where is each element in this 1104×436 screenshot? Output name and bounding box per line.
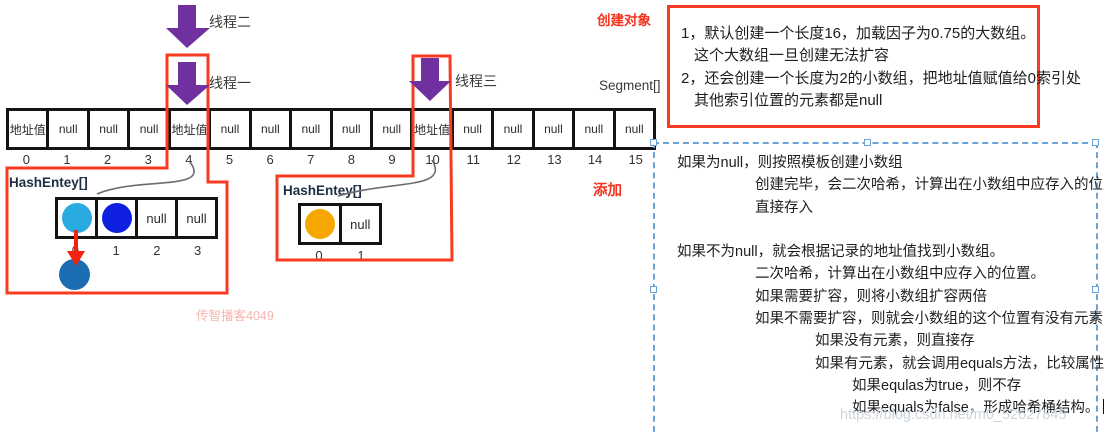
flow-line (657, 219, 1095, 241)
add-label: 添加 (593, 179, 622, 200)
segment-cell: null (451, 108, 494, 150)
segment-cell: null (127, 108, 170, 150)
hash-index: 1 (96, 243, 137, 258)
segment-cells: 地址值nullnullnull地址值nullnullnullnullnull地址… (6, 108, 656, 150)
left-hash-indices: 0123 (55, 243, 218, 258)
hash-index: 3 (177, 243, 218, 258)
hash-index: 0 (55, 243, 96, 258)
note-line: 2，还会创建一个长度为2的小数组，把地址值赋值给0索引处 (670, 68, 1037, 90)
segment-cell: 地址值 (410, 108, 453, 150)
hash-cell (95, 197, 138, 239)
entry-circle-icon (62, 203, 92, 233)
segment-index: 3 (128, 152, 169, 167)
selection-handle[interactable] (1092, 139, 1099, 146)
watermark-csdn-url: https://blog.csdn.net/m0_52627845 (840, 407, 1067, 423)
right-hash-cells: null (298, 203, 382, 245)
note-line: 其他索引位置的元素都是null (670, 90, 1037, 112)
thread3-label: 线程三 (455, 71, 497, 91)
segment-index: 0 (6, 152, 47, 167)
segment-index: 7 (290, 152, 331, 167)
segment-cell: null (572, 108, 615, 150)
segment-index: 12 (494, 152, 535, 167)
flow-notes-textbox[interactable]: 如果为null，则按照模板创建小数组创建完毕，会二次哈希，计算出在小数组中应存入… (657, 146, 1095, 420)
hash-cell (298, 203, 342, 245)
flow-line: 如果为null，则按照模板创建小数组 (657, 152, 1095, 174)
flow-line: 如果需要扩容，则将小数组扩容两倍 (657, 286, 1095, 308)
hash-cell: null (135, 197, 178, 239)
selection-handle[interactable] (650, 286, 657, 293)
segment-cell: 地址值 (6, 108, 49, 150)
thread3-arrow-icon (409, 58, 451, 101)
segment-index: 14 (575, 152, 616, 167)
segment-index: 6 (250, 152, 291, 167)
hash-index: 0 (298, 248, 340, 263)
segment-cell: 地址值 (168, 108, 211, 150)
selection-handle[interactable] (650, 139, 657, 146)
segment-index: 8 (331, 152, 372, 167)
thread2-arrow-icon (166, 5, 210, 48)
segment-index: 2 (87, 152, 128, 167)
right-hash-indices: 01 (298, 248, 382, 263)
entry-circle-icon (305, 209, 335, 239)
segment-index: 15 (615, 152, 656, 167)
flow-line: 如果没有元素，则直接存 (657, 330, 1095, 352)
flow-line: 如果不需要扩容，则就会小数组的这个位置有没有元素 (657, 308, 1095, 330)
left-hashentry-label: HashEntey[] (9, 175, 88, 190)
create-object-label: 创建对象 (597, 9, 651, 29)
left-hash-cells: nullnull (55, 197, 218, 239)
creation-notes-box: 1，默认创建一个长度16，加载因子为0.75的大数组。这个大数组一旦创建无法扩容… (667, 5, 1040, 128)
segment-cell: null (87, 108, 130, 150)
hash-index: 2 (137, 243, 178, 258)
hash-cell: null (339, 203, 383, 245)
segment-cell: null (249, 108, 292, 150)
segment-cell: null (46, 108, 89, 150)
segment-cell: null (289, 108, 332, 150)
segment-index: 4 (169, 152, 210, 167)
hash-cell (55, 197, 98, 239)
segment-array-label: Segment[] (599, 78, 661, 93)
right-hashentry-label: HashEntey[] (283, 183, 362, 198)
segment-index: 13 (534, 152, 575, 167)
segment-cell: null (208, 108, 251, 150)
segment-cell: null (370, 108, 413, 150)
segment-index: 1 (47, 152, 88, 167)
segment-index: 10 (412, 152, 453, 167)
watermark-chuanzhi: 传智播客4049 (196, 305, 274, 324)
segment-cell: null (491, 108, 534, 150)
segment-index: 11 (453, 152, 494, 167)
note-line: 1，默认创建一个长度16，加载因子为0.75的大数组。 (670, 23, 1037, 45)
flow-line: 创建完毕，会二次哈希，计算出在小数组中应存入的位置。 (657, 174, 1095, 196)
segment-index: 9 (372, 152, 413, 167)
segment-cell: null (330, 108, 373, 150)
flow-line: 如果不为null，就会根据记录的地址值找到小数组。 (657, 241, 1095, 263)
segment-index: 5 (209, 152, 250, 167)
thread2-label: 线程二 (209, 12, 251, 32)
concurrent-hashmap-diagram: 线程二 线程一 线程三 创建对象 Segment[] 添加 地址值nullnul… (0, 0, 1104, 436)
hash-cell: null (175, 197, 218, 239)
selection-handle[interactable] (864, 139, 871, 146)
hash-index: 1 (340, 248, 382, 263)
flow-line: 如果有元素，就会调用equals方法，比较属性值 (657, 353, 1095, 375)
segment-indices: 0123456789101112131415 (6, 152, 656, 167)
flow-line: 二次哈希，计算出在小数组中应存入的位置。 (657, 263, 1095, 285)
segment-cell: null (532, 108, 575, 150)
flow-line: 直接存入 (657, 197, 1095, 219)
detached-entry-circle-icon (59, 259, 90, 290)
thread1-arrow-icon (166, 62, 210, 105)
note-line: 这个大数组一旦创建无法扩容 (670, 45, 1037, 67)
flow-line: 如果equlas为true，则不存 (657, 375, 1095, 397)
entry-circle-icon (102, 203, 132, 233)
thread1-label: 线程一 (209, 73, 251, 93)
